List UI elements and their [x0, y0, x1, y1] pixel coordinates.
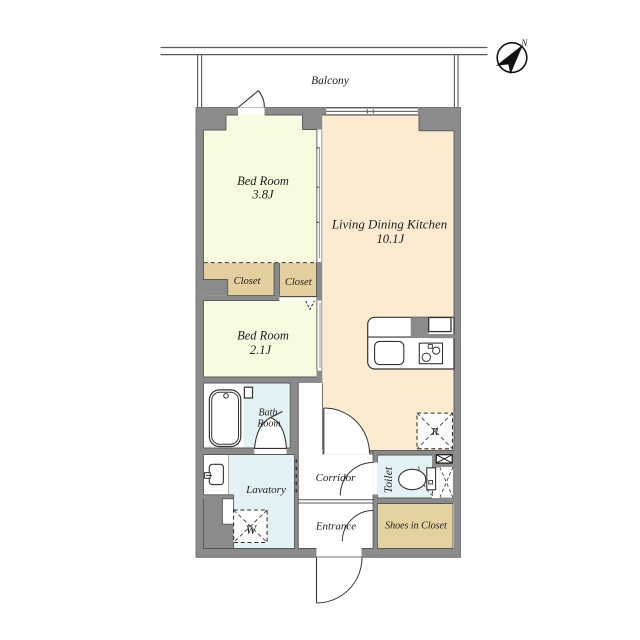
svg-text:Living Dining Kitchen: Living Dining Kitchen	[331, 217, 447, 231]
svg-text:Bed Room: Bed Room	[237, 329, 289, 343]
svg-text:Entrance: Entrance	[315, 521, 356, 533]
svg-text:W: W	[246, 523, 258, 537]
svg-text:Bed Room: Bed Room	[237, 174, 289, 188]
svg-text:Toilet: Toilet	[381, 466, 395, 493]
svg-text:Room: Room	[256, 418, 280, 429]
svg-text:Shoes in Closet: Shoes in Closet	[385, 521, 447, 532]
svg-text:N: N	[520, 38, 528, 48]
svg-text:10.1J: 10.1J	[376, 232, 405, 246]
svg-text:Bath: Bath	[259, 408, 278, 419]
svg-text:Lavatory: Lavatory	[245, 484, 286, 496]
svg-text:Balcony: Balcony	[311, 75, 350, 87]
svg-text:R: R	[431, 427, 439, 438]
svg-text:Closet: Closet	[234, 276, 262, 287]
svg-text:3.8J: 3.8J	[251, 188, 275, 202]
svg-text:Closet: Closet	[285, 277, 313, 288]
svg-text:Corridor: Corridor	[316, 472, 356, 484]
svg-text:2.1J: 2.1J	[250, 343, 273, 357]
